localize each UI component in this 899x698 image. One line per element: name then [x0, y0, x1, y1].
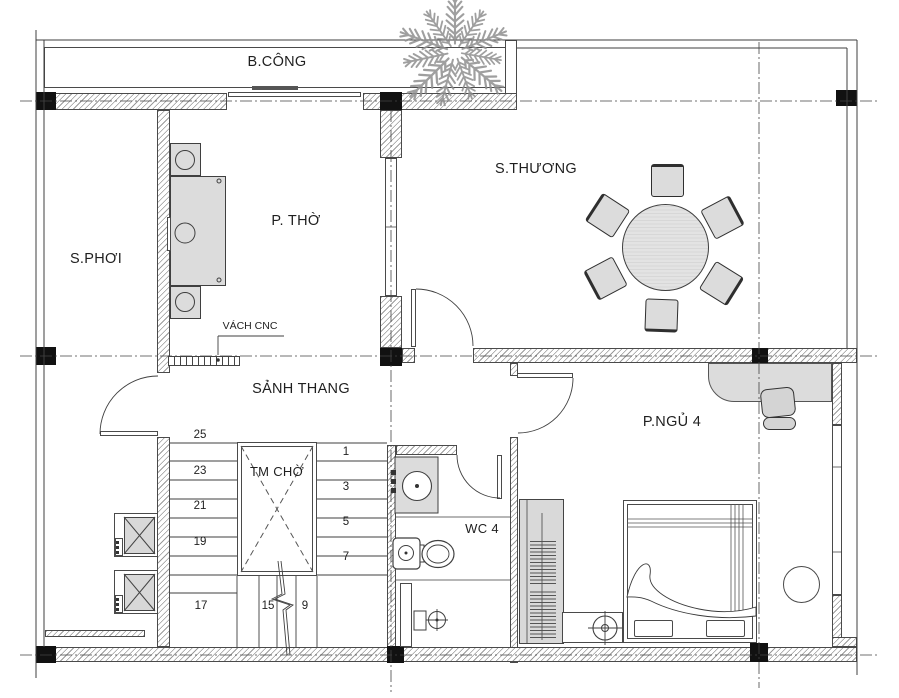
- ac-unit-panel: [115, 538, 123, 556]
- wall-segment: [380, 296, 402, 348]
- shower-partition: [400, 583, 412, 647]
- stair-number: 7: [343, 551, 349, 563]
- wardrobe-hangers: [530, 589, 556, 638]
- office-chair-seat: [760, 386, 797, 418]
- window: [832, 425, 842, 595]
- stair-number: 15: [262, 600, 275, 612]
- office-chair-back: [763, 417, 796, 430]
- column-marker: [36, 646, 56, 663]
- dining-chair: [644, 298, 678, 332]
- room-label-wc: WC 4: [465, 521, 499, 536]
- pillow: [706, 620, 745, 637]
- wall-segment: [36, 93, 227, 110]
- wall-segment: [832, 637, 857, 647]
- ac-unit-core: [124, 574, 155, 611]
- wardrobe-hangers: [530, 540, 556, 584]
- wall-segment: [473, 348, 857, 363]
- door-leaf: [497, 455, 502, 499]
- label-cnc-partition: VÁCH CNC: [223, 320, 278, 332]
- altar-side-bar: [167, 217, 171, 251]
- column-marker: [750, 643, 768, 662]
- column-marker: [836, 90, 857, 106]
- stair-number: 19: [194, 536, 207, 548]
- wall-segment: [402, 348, 415, 363]
- room-label-stair-hall: SẢNH THANG: [252, 381, 350, 397]
- sliding-door-panel: [228, 92, 361, 97]
- wall-segment: [157, 437, 170, 647]
- bed-inner: [627, 504, 753, 639]
- dining-chair: [699, 261, 744, 306]
- column-marker: [36, 347, 56, 365]
- room-label-balcony: B.CÔNG: [248, 54, 307, 70]
- room-label-terrace: S.THƯƠNG: [495, 161, 577, 177]
- stair-number: 1: [343, 446, 349, 458]
- wall-segment: [396, 445, 457, 455]
- shower: [414, 609, 448, 631]
- window: [385, 158, 397, 296]
- dining-chair: [651, 164, 684, 197]
- altar-table: [170, 176, 226, 286]
- stair-number: 25: [194, 429, 207, 441]
- wall-segment: [387, 445, 396, 663]
- floor-plan: B.CÔNG S.PHƠI P. THỜ S.THƯƠNG SẢNH THANG…: [0, 0, 899, 698]
- altar-stool: [170, 143, 201, 176]
- ac-unit-core: [124, 517, 155, 554]
- stair-number: 23: [194, 465, 207, 477]
- stair-number: 3: [343, 481, 349, 493]
- stool: [783, 566, 820, 603]
- wall-segment: [38, 647, 857, 662]
- pillow: [634, 620, 673, 637]
- column-marker: [380, 92, 402, 110]
- column-marker: [752, 348, 768, 363]
- wall-segment: [832, 363, 842, 425]
- room-label-bedroom: P.NGỦ 4: [643, 414, 701, 430]
- toilet: [393, 538, 454, 569]
- label-elevator-shaft: TM CHỜ: [250, 464, 304, 479]
- wall-segment: [380, 110, 402, 158]
- sink: [391, 457, 438, 513]
- column-marker: [380, 348, 402, 366]
- stair-number: 21: [194, 500, 207, 512]
- stair-number: 17: [195, 600, 208, 612]
- ac-unit-panel: [115, 595, 123, 613]
- column-marker: [387, 646, 404, 663]
- room-label-worship: P. THỜ: [271, 213, 320, 229]
- door-leaf: [411, 289, 416, 347]
- stair-number: 5: [343, 516, 349, 528]
- dining-chair: [583, 256, 628, 301]
- stair-number: 9: [302, 600, 308, 612]
- sliding-door-panel: [252, 86, 298, 90]
- wall-segment: [510, 437, 518, 663]
- leader-line: [218, 336, 284, 355]
- altar-stool: [170, 286, 201, 319]
- door-leaf: [517, 373, 573, 378]
- dining-chair: [585, 193, 631, 239]
- round-table: [622, 204, 709, 291]
- column-marker: [36, 92, 56, 110]
- door-leaf: [100, 431, 158, 436]
- room-label-drying: S.PHƠI: [70, 251, 122, 267]
- cnc-partition-strip: [168, 356, 240, 366]
- nightstand: [562, 612, 623, 643]
- wall-segment: [45, 630, 145, 637]
